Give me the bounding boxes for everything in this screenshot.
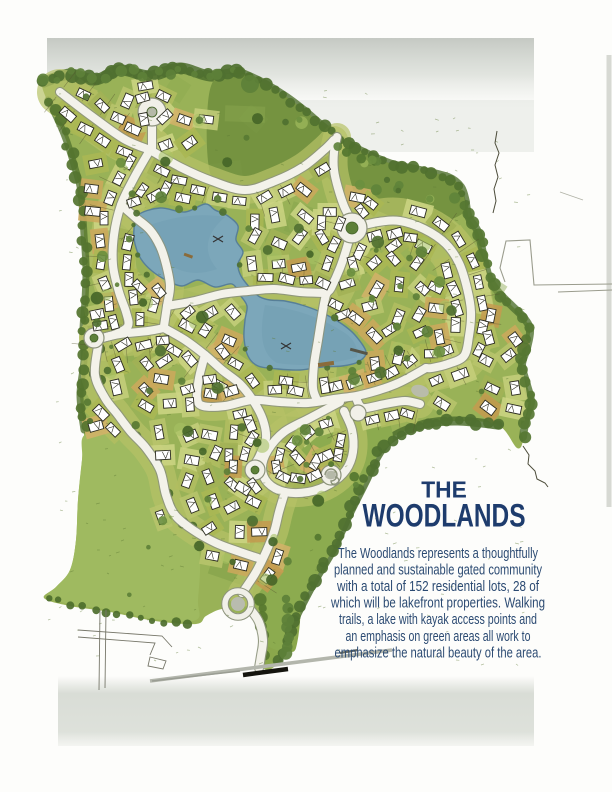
svg-text:planned and sustainable gated: planned and sustainable gated community: [334, 562, 543, 578]
svg-text:with a total of 152 residentia: with a total of 152 residential lots, 28…: [336, 579, 540, 595]
svg-text:WOODLANDS: WOODLANDS: [363, 498, 526, 534]
svg-text:an emphasis on green areas all: an emphasis on green areas all work to: [346, 629, 531, 645]
svg-text:The Woodlands represents a tho: The Woodlands represents a thoughtfully: [338, 546, 539, 562]
svg-text:emphasize the natural beauty o: emphasize the natural beauty of the area…: [335, 645, 542, 661]
svg-text:which will be lakefront proper: which will be lakefront properties. Walk…: [330, 596, 545, 612]
svg-text:trails, a lake with kayak acce: trails, a lake with kayak access points …: [339, 612, 537, 628]
